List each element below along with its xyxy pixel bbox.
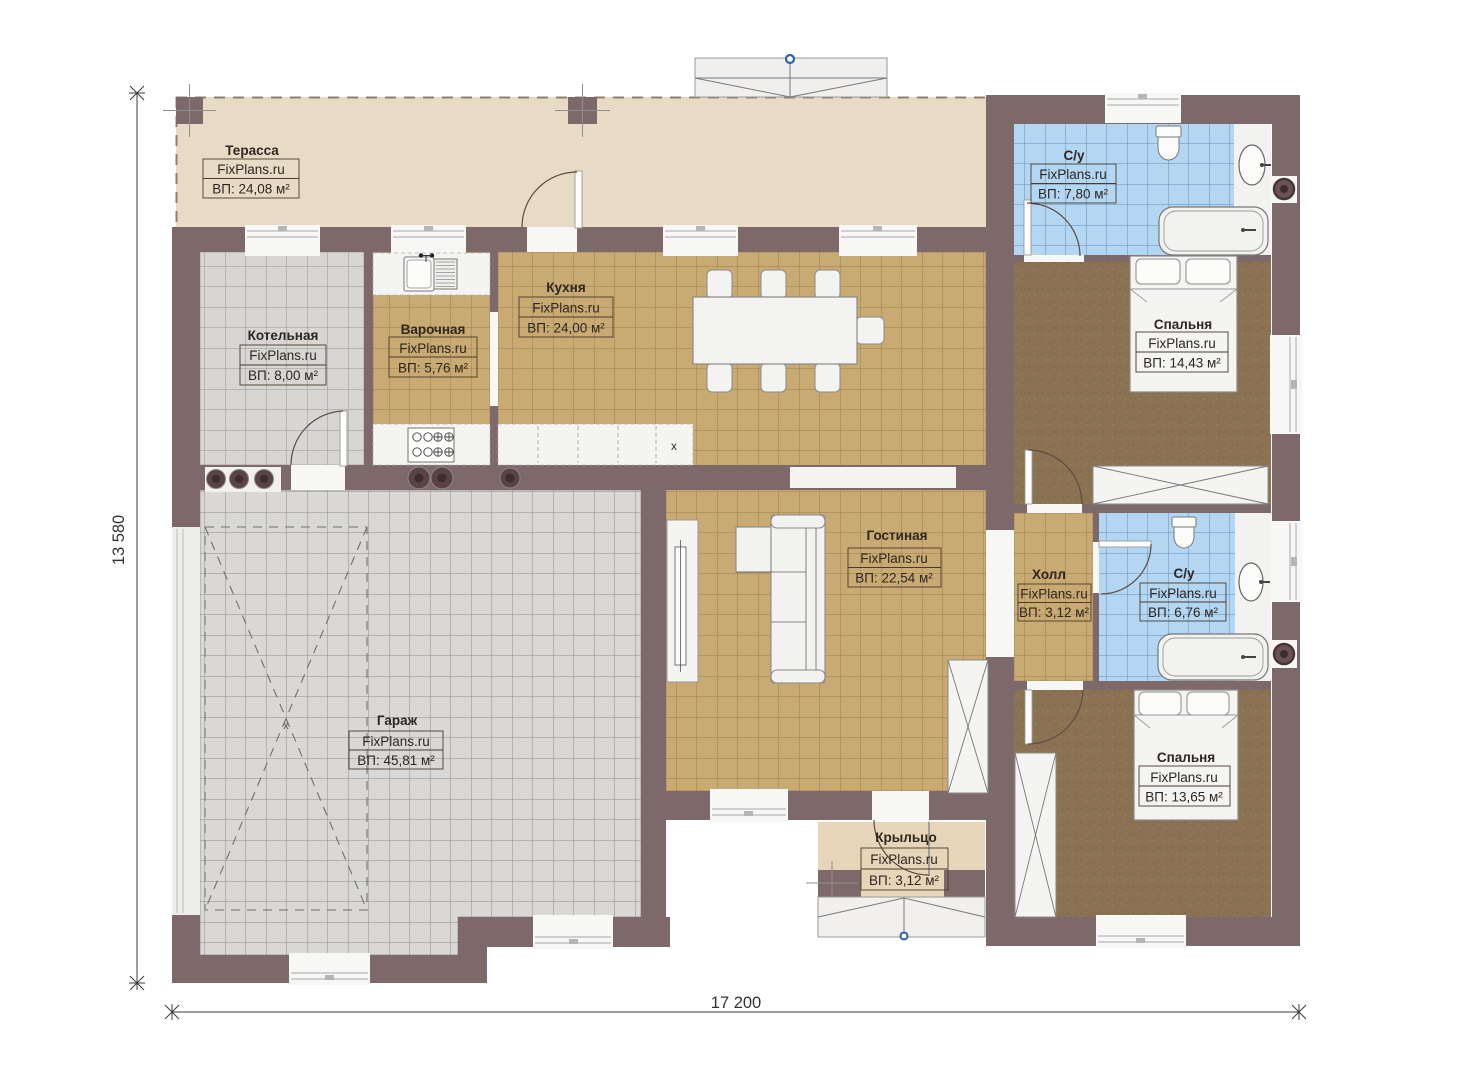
svg-text:ВП: 3,12 м²: ВП: 3,12 м²	[1019, 605, 1090, 620]
svg-text:Варочная: Варочная	[401, 322, 466, 337]
svg-text:С/у: С/у	[1173, 566, 1195, 581]
svg-text:ВП: 5,76 м²: ВП: 5,76 м²	[398, 361, 469, 376]
svg-text:FixPlans.ru: FixPlans.ru	[1149, 586, 1217, 601]
svg-text:Гостиная: Гостиная	[866, 528, 927, 543]
svg-text:13 580: 13 580	[110, 515, 128, 565]
svg-text:Спальня: Спальня	[1157, 750, 1215, 765]
svg-text:Холл: Холл	[1032, 567, 1066, 582]
svg-text:FixPlans.ru: FixPlans.ru	[1148, 336, 1216, 351]
svg-text:С/у: С/у	[1063, 148, 1085, 163]
svg-text:FixPlans.ru: FixPlans.ru	[1150, 770, 1218, 785]
svg-text:Терасса: Терасса	[225, 143, 279, 158]
svg-text:ВП: 22,54 м²: ВП: 22,54 м²	[855, 571, 933, 586]
svg-text:Крыльцо: Крыльцо	[875, 830, 936, 845]
svg-text:FixPlans.ru: FixPlans.ru	[399, 341, 467, 356]
svg-text:FixPlans.ru: FixPlans.ru	[1039, 167, 1107, 182]
svg-text:FixPlans.ru: FixPlans.ru	[870, 852, 938, 867]
svg-text:ВП: 13,65 м²: ВП: 13,65 м²	[1145, 790, 1223, 805]
svg-text:Гараж: Гараж	[377, 713, 418, 728]
svg-text:FixPlans.ru: FixPlans.ru	[217, 162, 285, 177]
svg-text:17 200: 17 200	[711, 994, 761, 1012]
svg-text:ВП: 3,12 м²: ВП: 3,12 м²	[869, 873, 940, 888]
svg-text:x: x	[283, 720, 289, 732]
svg-text:Котельная: Котельная	[248, 328, 319, 343]
svg-text:FixPlans.ru: FixPlans.ru	[532, 301, 600, 316]
svg-text:ВП: 45,81 м²: ВП: 45,81 м²	[357, 753, 435, 768]
svg-text:Кухня: Кухня	[546, 280, 585, 295]
svg-text:ВП: 24,00 м²: ВП: 24,00 м²	[527, 321, 605, 336]
svg-text:FixPlans.ru: FixPlans.ru	[249, 348, 317, 363]
svg-text:FixPlans.ru: FixPlans.ru	[1020, 587, 1088, 602]
svg-text:ВП: 7,80 м²: ВП: 7,80 м²	[1038, 187, 1109, 202]
svg-text:ВП: 14,43 м²: ВП: 14,43 м²	[1143, 356, 1221, 371]
svg-text:FixPlans.ru: FixPlans.ru	[860, 551, 928, 566]
svg-text:x: x	[671, 439, 677, 453]
svg-text:ВП: 24,08 м²: ВП: 24,08 м²	[212, 182, 290, 197]
svg-text:Спальня: Спальня	[1154, 317, 1212, 332]
svg-text:FixPlans.ru: FixPlans.ru	[362, 734, 430, 749]
svg-text:ВП: 8,00 м²: ВП: 8,00 м²	[248, 368, 319, 383]
svg-text:ВП: 6,76 м²: ВП: 6,76 м²	[1148, 605, 1219, 620]
